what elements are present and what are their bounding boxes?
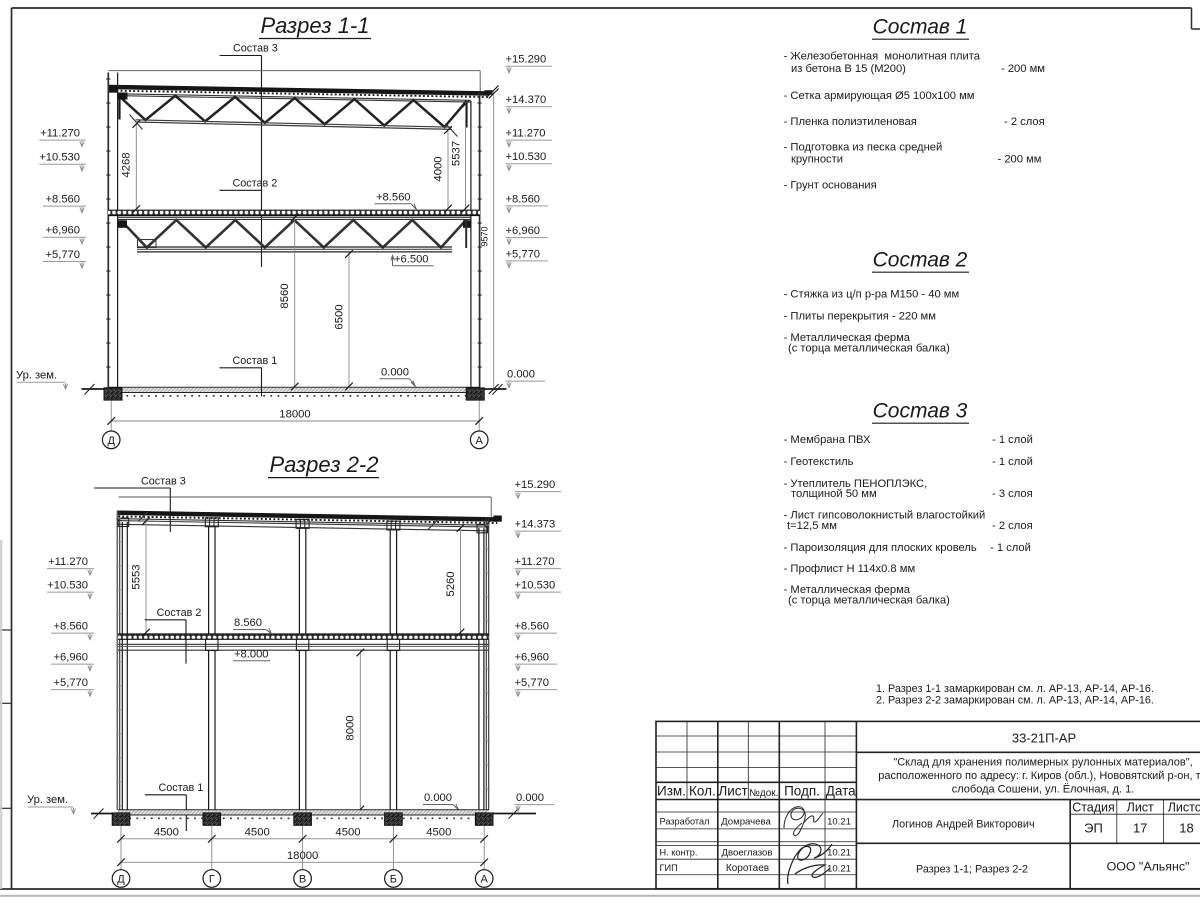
svg-text:Разрез 1-1; Разрез 2-2: Разрез 1-1; Разрез 2-2 (916, 864, 1028, 876)
svg-text:- Железобетонная монолитная п: - Железобетонная монолитная плита (784, 51, 981, 63)
svg-text:+10.530: +10.530 (47, 580, 88, 592)
svg-text:- 3 слоя: - 3 слоя (992, 488, 1033, 500)
svg-text:Д: Д (117, 874, 125, 886)
svg-text:8.560: 8.560 (234, 617, 262, 629)
svg-text:"Склад для хранения полимерных: "Склад для хранения полимерных рулонных … (893, 757, 1192, 769)
svg-text:- 200 мм: - 200 мм (1001, 63, 1045, 75)
svg-text:- Стяжка из ц/п р-ра М150 - 40: - Стяжка из ц/п р-ра М150 - 40 мм (784, 289, 960, 301)
svg-text:6500: 6500 (333, 304, 345, 329)
svg-text:- Грунт основания: - Грунт основания (784, 179, 877, 191)
svg-text:8000: 8000 (345, 715, 357, 740)
svg-text:1. Разрез 1-1 замаркирован см.: 1. Разрез 1-1 замаркирован см. л. АР-13,… (876, 683, 1154, 695)
svg-text:из бетона В 15 (М200): из бетона В 15 (М200) (791, 63, 906, 75)
svg-text:- Подготовка из песка средней: - Подготовка из песка средней (784, 142, 943, 154)
svg-text:Состав 3: Состав 3 (873, 400, 968, 423)
svg-text:+11.270: +11.270 (48, 556, 88, 568)
svg-text:№док.: №док. (749, 788, 778, 799)
svg-text:Домрачева: Домрачева (721, 816, 771, 827)
svg-text:+5,770: +5,770 (515, 677, 550, 689)
svg-text:расположенного по адресу: г. К: расположенного по адресу: г. Киров (обл.… (878, 770, 1200, 782)
svg-text:17: 17 (1133, 821, 1147, 836)
svg-text:Б: Б (390, 874, 397, 886)
svg-text:t=12,5 мм: t=12,5 мм (787, 520, 837, 532)
svg-text:+11.270: +11.270 (40, 128, 80, 140)
svg-text:Ур. зем.: Ур. зем. (16, 370, 57, 382)
svg-text:- Геотекстиль: - Геотекстиль (784, 456, 854, 468)
svg-text:0.000: 0.000 (424, 792, 452, 804)
svg-text:(с торца металлическая балка): (с торца металлическая балка) (788, 342, 950, 354)
svg-text:Разработал: Разработал (660, 816, 710, 826)
svg-text:Состав 1: Состав 1 (873, 16, 968, 39)
svg-text:Логинов Андрей Викторович: Логинов Андрей Викторович (892, 819, 1035, 831)
svg-text:4500: 4500 (154, 826, 179, 838)
svg-text:ЭП: ЭП (1084, 821, 1103, 836)
svg-text:Состав 2: Состав 2 (157, 607, 202, 619)
svg-text:4268: 4268 (121, 152, 133, 177)
svg-text:10.21: 10.21 (827, 816, 851, 827)
svg-text:Двоеглазов: Двоеглазов (722, 847, 773, 858)
svg-text:+10.530: +10.530 (506, 151, 547, 163)
svg-text:Состав 2: Состав 2 (873, 249, 968, 272)
svg-text:+8.560: +8.560 (506, 193, 541, 205)
svg-text:+8.560: +8.560 (53, 621, 88, 633)
svg-text:9570: 9570 (479, 226, 489, 246)
svg-text:толщиной 50 мм: толщиной 50 мм (791, 488, 877, 500)
svg-text:А: А (481, 874, 489, 886)
svg-text:+15.290: +15.290 (506, 54, 547, 66)
svg-text:8560: 8560 (279, 283, 291, 308)
svg-text:+6,960: +6,960 (45, 225, 80, 237)
svg-text:18000: 18000 (279, 409, 310, 421)
svg-text:+6,960: +6,960 (506, 225, 541, 237)
svg-text:- Сетка армирующая Ø5 100х100: - Сетка армирующая Ø5 100х100 мм (784, 90, 975, 102)
svg-text:Кол.: Кол. (689, 783, 716, 798)
svg-text:- Плиты перекрытия - 220 мм: - Плиты перекрытия - 220 мм (784, 311, 936, 323)
svg-text:Н. контр.: Н. контр. (660, 847, 698, 857)
svg-text:Дата: Дата (826, 783, 856, 798)
svg-text:крупности: крупности (791, 154, 843, 166)
svg-text:0.000: 0.000 (507, 369, 535, 381)
svg-text:+15.290: +15.290 (515, 479, 556, 491)
svg-text:5537: 5537 (451, 141, 463, 166)
svg-text:10.21: 10.21 (827, 863, 851, 874)
svg-text:18: 18 (1179, 821, 1193, 836)
svg-text:- Пароизоляция для плоских кро: - Пароизоляция для плоских кровель (784, 542, 977, 554)
svg-text:+14.373: +14.373 (515, 519, 556, 531)
svg-text:Стадия: Стадия (1072, 800, 1115, 814)
svg-text:0.000: 0.000 (381, 366, 409, 378)
svg-text:Состав 1: Состав 1 (159, 782, 204, 794)
svg-text:Состав 2: Состав 2 (233, 178, 278, 190)
svg-text:Лист: Лист (718, 783, 747, 798)
svg-text:18000: 18000 (287, 850, 318, 862)
svg-text:+5,770: +5,770 (53, 677, 88, 689)
svg-text:- 2 слоя: - 2 слоя (1004, 116, 1045, 128)
svg-text:Изм.: Изм. (657, 783, 686, 798)
svg-text:5260: 5260 (445, 571, 457, 596)
svg-text:- 2 слоя: - 2 слоя (992, 520, 1033, 532)
svg-text:В: В (299, 874, 306, 886)
svg-text:+8.000: +8.000 (234, 648, 269, 660)
svg-text:слобода Сошени, ул. Ёлочная, д: слобода Сошени, ул. Ёлочная, д. 1. (952, 784, 1135, 796)
svg-text:+5,770: +5,770 (506, 248, 541, 260)
svg-text:+5,770: +5,770 (45, 249, 80, 261)
svg-text:0.000: 0.000 (516, 792, 544, 804)
svg-text:- 200 мм: - 200 мм (998, 154, 1042, 166)
svg-text:- Мембрана ПВХ: - Мембрана ПВХ (784, 434, 871, 446)
svg-text:4500: 4500 (335, 826, 360, 838)
svg-text:+14.370: +14.370 (506, 94, 547, 106)
svg-text:- 1 слой: - 1 слой (990, 542, 1031, 554)
svg-text:+11.270: +11.270 (506, 128, 546, 140)
svg-text:+8.560: +8.560 (376, 191, 411, 203)
svg-text:Подп.: Подп. (784, 783, 820, 798)
svg-text:+6.500: +6.500 (394, 253, 429, 265)
svg-text:Состав 3: Состав 3 (233, 43, 278, 55)
svg-text:ООО "Альянс": ООО "Альянс" (1107, 859, 1190, 873)
svg-text:+10.530: +10.530 (39, 152, 80, 164)
svg-text:+6,960: +6,960 (515, 652, 550, 664)
svg-text:Г: Г (209, 874, 215, 886)
svg-text:- 1 слой: - 1 слой (992, 434, 1033, 446)
svg-text:+8.560: +8.560 (515, 621, 550, 633)
svg-text:- 1 слой: - 1 слой (992, 456, 1033, 468)
svg-text:Листов: Листов (1168, 800, 1200, 814)
svg-text:А: А (476, 435, 484, 447)
svg-text:4000: 4000 (432, 156, 444, 181)
svg-text:Ур. зем.: Ур. зем. (27, 794, 68, 806)
svg-text:Состав 1: Состав 1 (233, 355, 278, 367)
svg-text:+6,960: +6,960 (53, 652, 88, 664)
svg-text:Д: Д (107, 435, 115, 447)
svg-text:- Профлист Н 114х0.8 мм: - Профлист Н 114х0.8 мм (784, 563, 916, 575)
svg-text:- Пленка полиэтиленовая: - Пленка полиэтиленовая (784, 116, 917, 128)
svg-text:Коротаев: Коротаев (726, 863, 769, 874)
svg-text:+10.530: +10.530 (515, 580, 556, 592)
svg-text:+11.270: +11.270 (515, 556, 555, 568)
svg-text:ГИП: ГИП (660, 863, 678, 873)
svg-text:4500: 4500 (426, 826, 451, 838)
svg-text:(с торца металлическая балка): (с торца металлическая балка) (788, 595, 950, 607)
svg-text:+8.560: +8.560 (45, 194, 80, 206)
svg-text:5553: 5553 (130, 564, 142, 589)
svg-text:2. Разрез 2-2 замаркирован см.: 2. Разрез 2-2 замаркирован см. л. АР-13,… (876, 695, 1154, 707)
svg-text:33-21П-АР: 33-21П-АР (1012, 731, 1076, 746)
svg-text:4500: 4500 (245, 826, 270, 838)
svg-text:10.21: 10.21 (827, 847, 851, 858)
svg-text:Разрез 1-1: Разрез 1-1 (260, 13, 369, 38)
svg-text:Лист: Лист (1127, 800, 1154, 814)
svg-text:Состав 3: Состав 3 (141, 476, 186, 488)
svg-text:Разрез 2-2: Разрез 2-2 (269, 452, 378, 477)
